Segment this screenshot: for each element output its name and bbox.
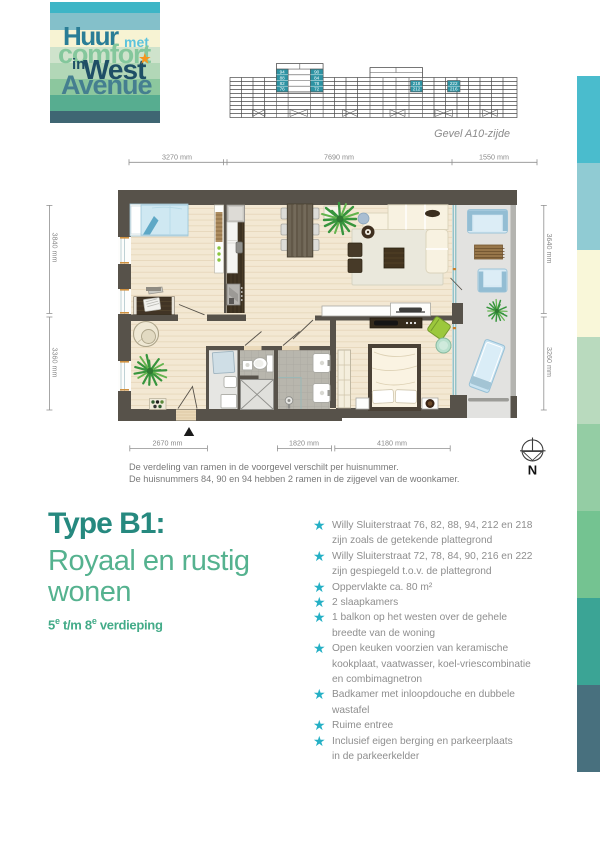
svg-text:N: N [528,463,537,478]
svg-text:72: 72 [314,87,320,92]
svg-text:218: 218 [413,81,421,86]
svg-text:1550 mm: 1550 mm [479,153,509,162]
svg-text:3260 mm: 3260 mm [545,347,554,377]
svg-text:2670 mm: 2670 mm [153,439,183,448]
svg-text:1820 mm: 1820 mm [289,439,319,448]
svg-text:Gevel A10-zijde: Gevel A10-zijde [434,128,510,140]
svg-text:76: 76 [280,87,286,92]
svg-text:222: 222 [450,81,458,86]
svg-text:78: 78 [314,81,320,86]
svg-text:212: 212 [413,87,421,92]
svg-text:3360 mm: 3360 mm [51,348,60,378]
svg-text:84: 84 [314,75,320,80]
svg-text:216: 216 [450,87,458,92]
svg-text:3270 mm: 3270 mm [162,153,192,162]
svg-text:7690 mm: 7690 mm [324,153,354,162]
svg-text:94: 94 [280,70,286,75]
svg-text:82: 82 [280,81,286,86]
svg-text:3840 mm: 3840 mm [51,233,60,263]
svg-text:4180 mm: 4180 mm [377,439,407,448]
svg-text:90: 90 [314,70,320,75]
svg-text:3640 mm: 3640 mm [545,234,554,264]
svg-text:88: 88 [280,75,286,80]
